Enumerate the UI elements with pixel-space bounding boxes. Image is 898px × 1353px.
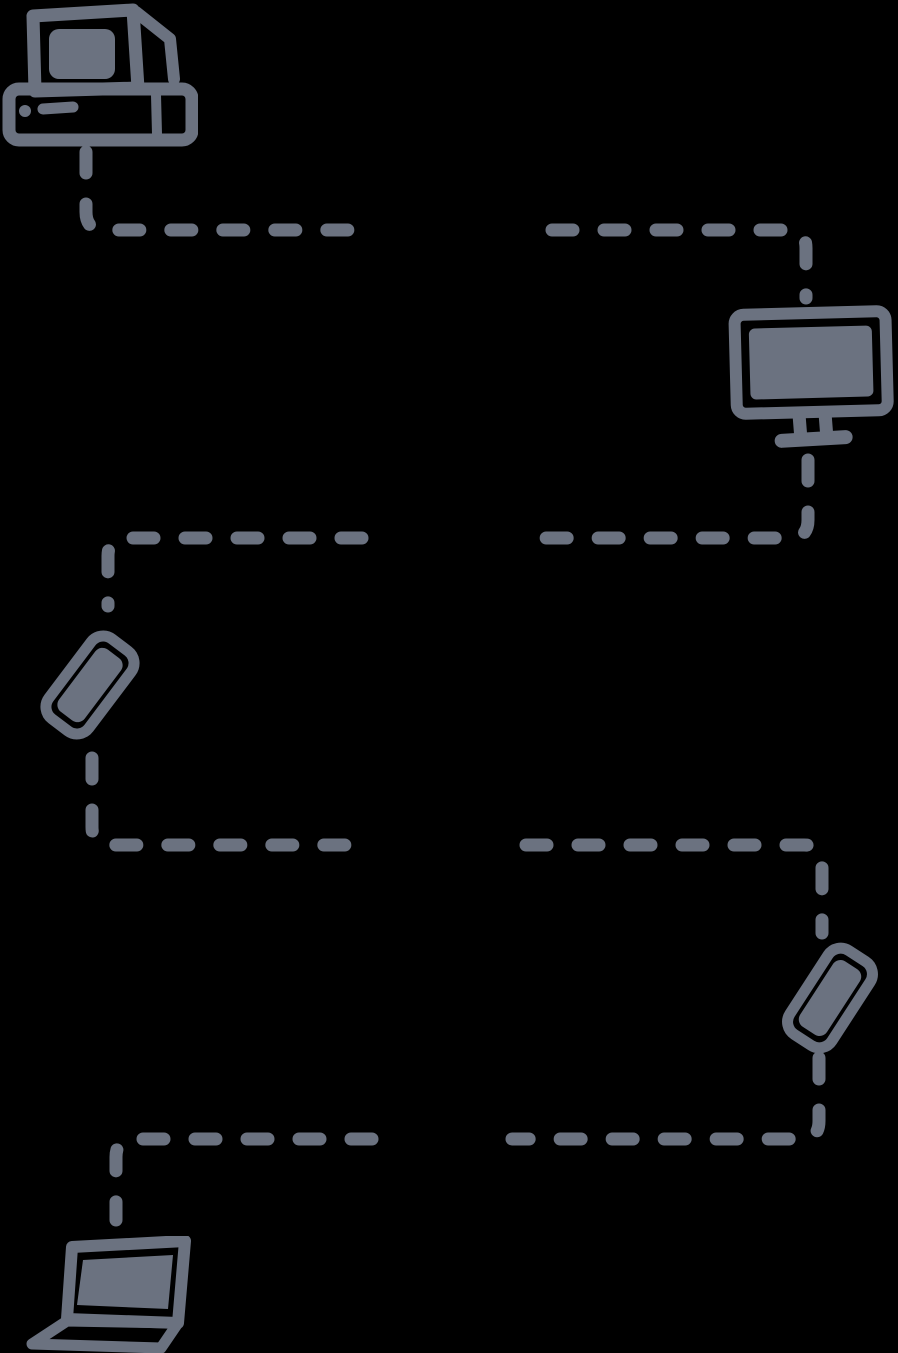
laptop-keyboard-base — [32, 1321, 178, 1348]
drive-bay-divider — [156, 95, 157, 134]
node-desktop-computer — [2, 3, 198, 149]
crt-screen — [49, 29, 115, 79]
connector-phone-right-laptop-segment-a — [512, 1058, 819, 1139]
connector-phone-left-phone-right-segment-b — [526, 845, 822, 933]
monitor-stand-leg-right — [825, 413, 826, 432]
connector-computer-monitor-segment-b — [552, 230, 806, 298]
retro-desktop-computer-icon — [2, 3, 198, 149]
monitor-screen — [749, 325, 874, 399]
laptop-icon — [22, 1236, 202, 1353]
connector-monitor-phone-left-segment-b — [108, 538, 362, 606]
connector-phone-left-phone-right-segment-a — [92, 758, 352, 845]
connector-monitor-phone-left-segment-a — [524, 460, 808, 538]
node-monitor — [728, 300, 896, 452]
connector-computer-monitor-segment-a — [86, 152, 370, 230]
laptop-screen — [77, 1255, 173, 1309]
connector-phone-right-laptop-segment-b — [116, 1139, 372, 1220]
monitor-stand-leg-left — [799, 414, 800, 433]
monitor-icon — [728, 300, 896, 452]
monitor-stand-base — [782, 437, 846, 441]
power-button — [19, 105, 31, 117]
node-laptop — [22, 1236, 202, 1353]
diagram-canvas — [0, 0, 898, 1353]
floppy-slot — [43, 107, 73, 109]
